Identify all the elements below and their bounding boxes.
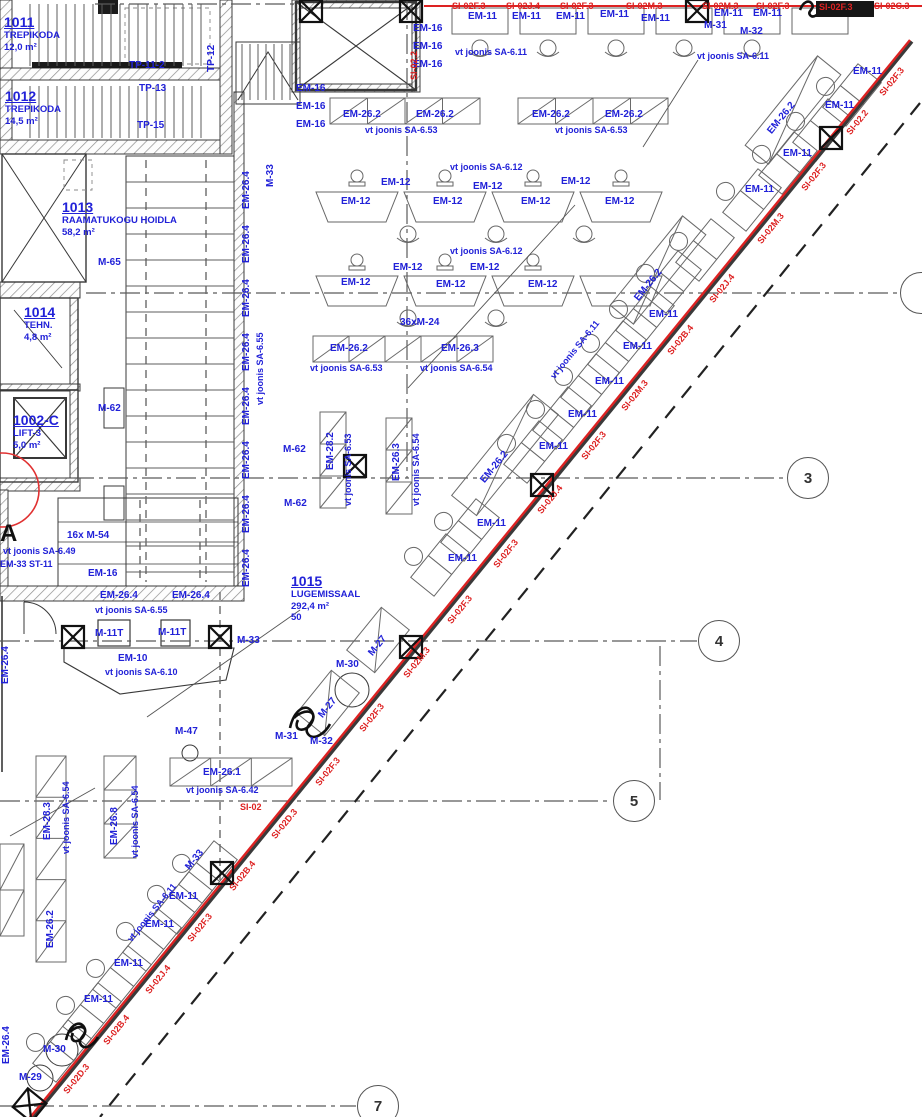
- room-info-line: RAAMATUKOGU HOIDLA: [62, 215, 177, 227]
- room-stamp-1015: 1015LUGEMISSAAL292,4 m²50: [291, 574, 360, 624]
- tag-em-26-3: EM-26.3: [441, 344, 479, 354]
- tag-em-26-4: EM-26.4: [100, 591, 138, 601]
- tag-em-12: EM-12: [341, 197, 370, 207]
- tag-em-12: EM-12: [341, 278, 370, 288]
- tag-em-11: EM-11: [853, 67, 882, 77]
- grid-bubble-3: 3: [787, 457, 829, 499]
- tag-em-16: EM-16: [296, 84, 325, 94]
- room-info-line: 50: [291, 612, 360, 624]
- column-box: [98, 0, 118, 14]
- tag-em-11: EM-11: [745, 185, 774, 195]
- tag-em-11: EM-11: [825, 101, 854, 111]
- tag-em-11: EM-11: [623, 342, 652, 352]
- tag-vt-joonis-sa-6-49: vt joonis SA-6.49: [3, 547, 76, 556]
- tag-em-26-4: EM-26.4: [242, 441, 252, 479]
- room-number: 1012: [5, 89, 61, 104]
- tag-m-32: M-32: [740, 27, 763, 37]
- room-number: 1015: [291, 574, 360, 589]
- tag-vt-joonis-sa-6-53: vt joonis SA-6.53: [555, 126, 628, 135]
- tag-em-12: EM-12: [473, 182, 502, 192]
- si-tag-si-02: SI-02: [240, 803, 262, 812]
- tag-vt-joonis-sa-6-12: vt joonis SA-6.12: [450, 247, 523, 256]
- si-tag-si-02c-3: SI-02C.3: [874, 2, 910, 11]
- room-info-line: LIFT-3: [13, 428, 59, 440]
- si-tag-si-02m-3: SI-02M.3: [702, 2, 739, 11]
- tag-em-26-4: EM-26.4: [172, 591, 210, 601]
- room-info-line: 14,5 m²: [5, 116, 61, 128]
- tag-em-12: EM-12: [436, 280, 465, 290]
- tag-m-30: M-30: [336, 660, 359, 670]
- grid-bubble-5: 5: [613, 780, 655, 822]
- room-info-line: 4,8 m²: [24, 332, 55, 344]
- tag-tp-11-2: TP-11-2: [129, 61, 165, 71]
- tag-em-11: EM-11: [595, 377, 624, 387]
- tag-em-11: EM-11: [783, 149, 812, 159]
- tag-em-33-st-11: EM-33 ST-11: [0, 560, 53, 569]
- tag-vt-joonis-sa-6-54: vt joonis SA-6.54: [62, 781, 71, 854]
- tag-em-26-3: EM-26.3: [392, 443, 402, 481]
- tag-m-33: M-33: [266, 164, 276, 187]
- tag-em-26-4: EM-26.4: [242, 333, 252, 371]
- tag-m-31: M-31: [275, 732, 298, 742]
- room-stamp-1012: 1012TREPIKODA14,5 m²: [5, 89, 61, 127]
- tag-em-26-4: EM-26.4: [242, 495, 252, 533]
- tag-em-12: EM-12: [561, 177, 590, 187]
- tag-em-26-4: EM-26.4: [242, 225, 252, 263]
- tag-em-12: EM-12: [470, 263, 499, 273]
- room-info-line: 5,0 m²: [13, 440, 59, 452]
- room-number: 1014: [24, 305, 55, 320]
- tag-vt-joonis-sa-6-53: vt joonis SA-6.53: [365, 126, 438, 135]
- room-stamp-1011: 1011TREPIKODA12,0 m²: [4, 15, 60, 53]
- tag-em-12: EM-12: [605, 197, 634, 207]
- floor-plan: EM-16EM-16EM-16EM-16EM-16EM-16EM-11EM-11…: [0, 0, 922, 1117]
- tag-em-11: EM-11: [641, 14, 670, 24]
- tag-em-11: EM-11: [600, 10, 629, 20]
- tag-em-26-2: EM-26.2: [605, 110, 643, 120]
- tag-m-29: M-29: [19, 1073, 42, 1083]
- si-tag-si-02f-3: SI-02F.3: [452, 2, 486, 11]
- tag-m-11t: M-11T: [158, 628, 186, 638]
- tag-em-26-4: EM-26.4: [2, 1026, 12, 1064]
- tag-em-26-4: EM-26.4: [242, 387, 252, 425]
- tag-em-11: EM-11: [448, 554, 477, 564]
- tag-36xm-24: 36xM-24: [400, 318, 439, 328]
- room-stamp-1014: 1014TEHN.4,8 m²: [24, 305, 55, 343]
- tag-em-12: EM-12: [393, 263, 422, 273]
- tag-em-26-2: EM-26.2: [343, 110, 381, 120]
- tag-vt-joonis-sa-6-42: vt joonis SA-6.42: [186, 786, 259, 795]
- room-number: 1011: [4, 15, 60, 30]
- tag-vt-joonis-sa-6-11: vt joonis SA-6.11: [455, 48, 527, 57]
- tag-em-11: EM-11: [568, 410, 597, 420]
- tag-m-62: M-62: [284, 499, 307, 509]
- tag-vt-joonis-sa-6-12: vt joonis SA-6.12: [450, 163, 523, 172]
- column-symbols: [13, 0, 842, 1117]
- si-tag-si-02m-3: SI-02M.3: [626, 2, 663, 11]
- tag-m-30: M-30: [43, 1045, 66, 1055]
- room-info-line: 292,4 m²: [291, 601, 360, 613]
- si-tag-si-02j-4: SI-02J.4: [506, 2, 540, 11]
- tag-vt-joonis-sa-6-55: vt joonis SA-6.55: [95, 606, 168, 615]
- shelving-rows: [126, 182, 234, 572]
- tag-em-26-4: EM-26.4: [1, 646, 11, 684]
- tag-em-28-3: EM-28.3: [43, 802, 53, 840]
- room-info-line: 58,2 m²: [62, 227, 177, 239]
- tag-m-33: M-33: [237, 636, 260, 646]
- tag-tp-15: TP-15: [137, 121, 164, 131]
- tag-em-26-4: EM-26.4: [242, 279, 252, 317]
- tag-em-11: EM-11: [477, 519, 506, 529]
- room-stamp-1002-c: 1002-CLIFT-35,0 m²: [13, 413, 59, 451]
- tag-em-16: EM-16: [296, 102, 325, 112]
- tag-16x-m-54: 16x M-54: [67, 531, 109, 541]
- tag-em-11: EM-11: [84, 995, 113, 1005]
- tag-em-12: EM-12: [381, 178, 410, 188]
- tag-em-12: EM-12: [521, 197, 550, 207]
- tag-em-11: EM-11: [114, 959, 143, 969]
- tag-em-26-4: EM-26.4: [242, 549, 252, 587]
- room-info-line: 12,0 m²: [4, 42, 60, 54]
- grid-bubble-4: 4: [698, 620, 740, 662]
- tag-m-31: M-31: [704, 21, 727, 31]
- room-info-line: TREPIKODA: [4, 30, 60, 42]
- si-tag-si-02f-3: SI-02F.3: [756, 2, 790, 11]
- tag-m-62: M-62: [98, 404, 121, 414]
- si-tag-si-02f-3: SI-02F.3: [819, 3, 853, 12]
- si-tag-si-02f-3: SI-02F.3: [560, 2, 594, 11]
- tag-em-11: EM-11: [539, 442, 568, 452]
- tag-m-47: M-47: [175, 727, 198, 737]
- tag-vt-joonis-sa-6-55: vt joonis SA-6.55: [256, 332, 265, 405]
- tag-vt-joonis-sa-6-53: vt joonis SA-6.53: [344, 433, 353, 506]
- tag-em-26-2: EM-26.2: [330, 344, 368, 354]
- tag-em-26-8: EM-26.8: [110, 807, 120, 845]
- tag-em-26-2: EM-26.2: [532, 110, 570, 120]
- tag-m-32: M-32: [310, 737, 333, 747]
- tag-m-11t: M-11T: [95, 629, 123, 639]
- room-info-line: TEHN.: [24, 320, 55, 332]
- tag-m-62: M-62: [283, 445, 306, 455]
- room-info-line: TREPIKODA: [5, 104, 61, 116]
- tag-em-16: EM-16: [413, 24, 442, 34]
- tag-vt-joonis-sa-6-10: vt joonis SA-6.10: [105, 668, 178, 677]
- tag-vt-joonis-sa-6-54: vt joonis SA-6.54: [412, 433, 421, 506]
- room-number: 1013: [62, 200, 177, 215]
- tag-tp-13: TP-13: [139, 84, 166, 94]
- tag-vt-joonis-sa-6-11: vt joonis SA-6.11: [697, 52, 769, 61]
- tag-em-28-2: EM-28.2: [326, 432, 336, 470]
- tag-em-11: EM-11: [649, 310, 678, 320]
- tag-em-16: EM-16: [296, 120, 325, 130]
- tag-em-26-1: EM-26.1: [203, 768, 241, 778]
- room-number: 1002-C: [13, 413, 59, 428]
- tag-em-26-4: EM-26.4: [242, 171, 252, 209]
- si-tag-si-02-2: SI-02.2: [410, 51, 419, 80]
- room-stamp-1013: 1013RAAMATUKOGU HOIDLA58,2 m²: [62, 200, 177, 238]
- tag-em-10: EM-10: [118, 654, 147, 664]
- tag-tp-12: TP-12: [207, 45, 217, 72]
- tag-em-11: EM-11: [468, 12, 497, 22]
- tag-vt-joonis-sa-6-54: vt joonis SA-6.54: [131, 785, 140, 858]
- tag-em-16: EM-16: [88, 569, 117, 579]
- tag-em-26-2: EM-26.2: [46, 910, 56, 948]
- tag-vt-joonis-sa-6-54: vt joonis SA-6.54: [420, 364, 493, 373]
- tag-vt-joonis-sa-6-53: vt joonis SA-6.53: [310, 364, 383, 373]
- tag-m-65: M-65: [98, 258, 121, 268]
- tag-em-11: EM-11: [512, 12, 541, 22]
- tag-em-11: EM-11: [556, 12, 585, 22]
- grid-marker-a: A: [0, 520, 17, 548]
- tag-em-26-2: EM-26.2: [416, 110, 454, 120]
- tag-em-12: EM-12: [433, 197, 462, 207]
- room-info-line: LUGEMISSAAL: [291, 589, 360, 601]
- tag-em-12: EM-12: [528, 280, 557, 290]
